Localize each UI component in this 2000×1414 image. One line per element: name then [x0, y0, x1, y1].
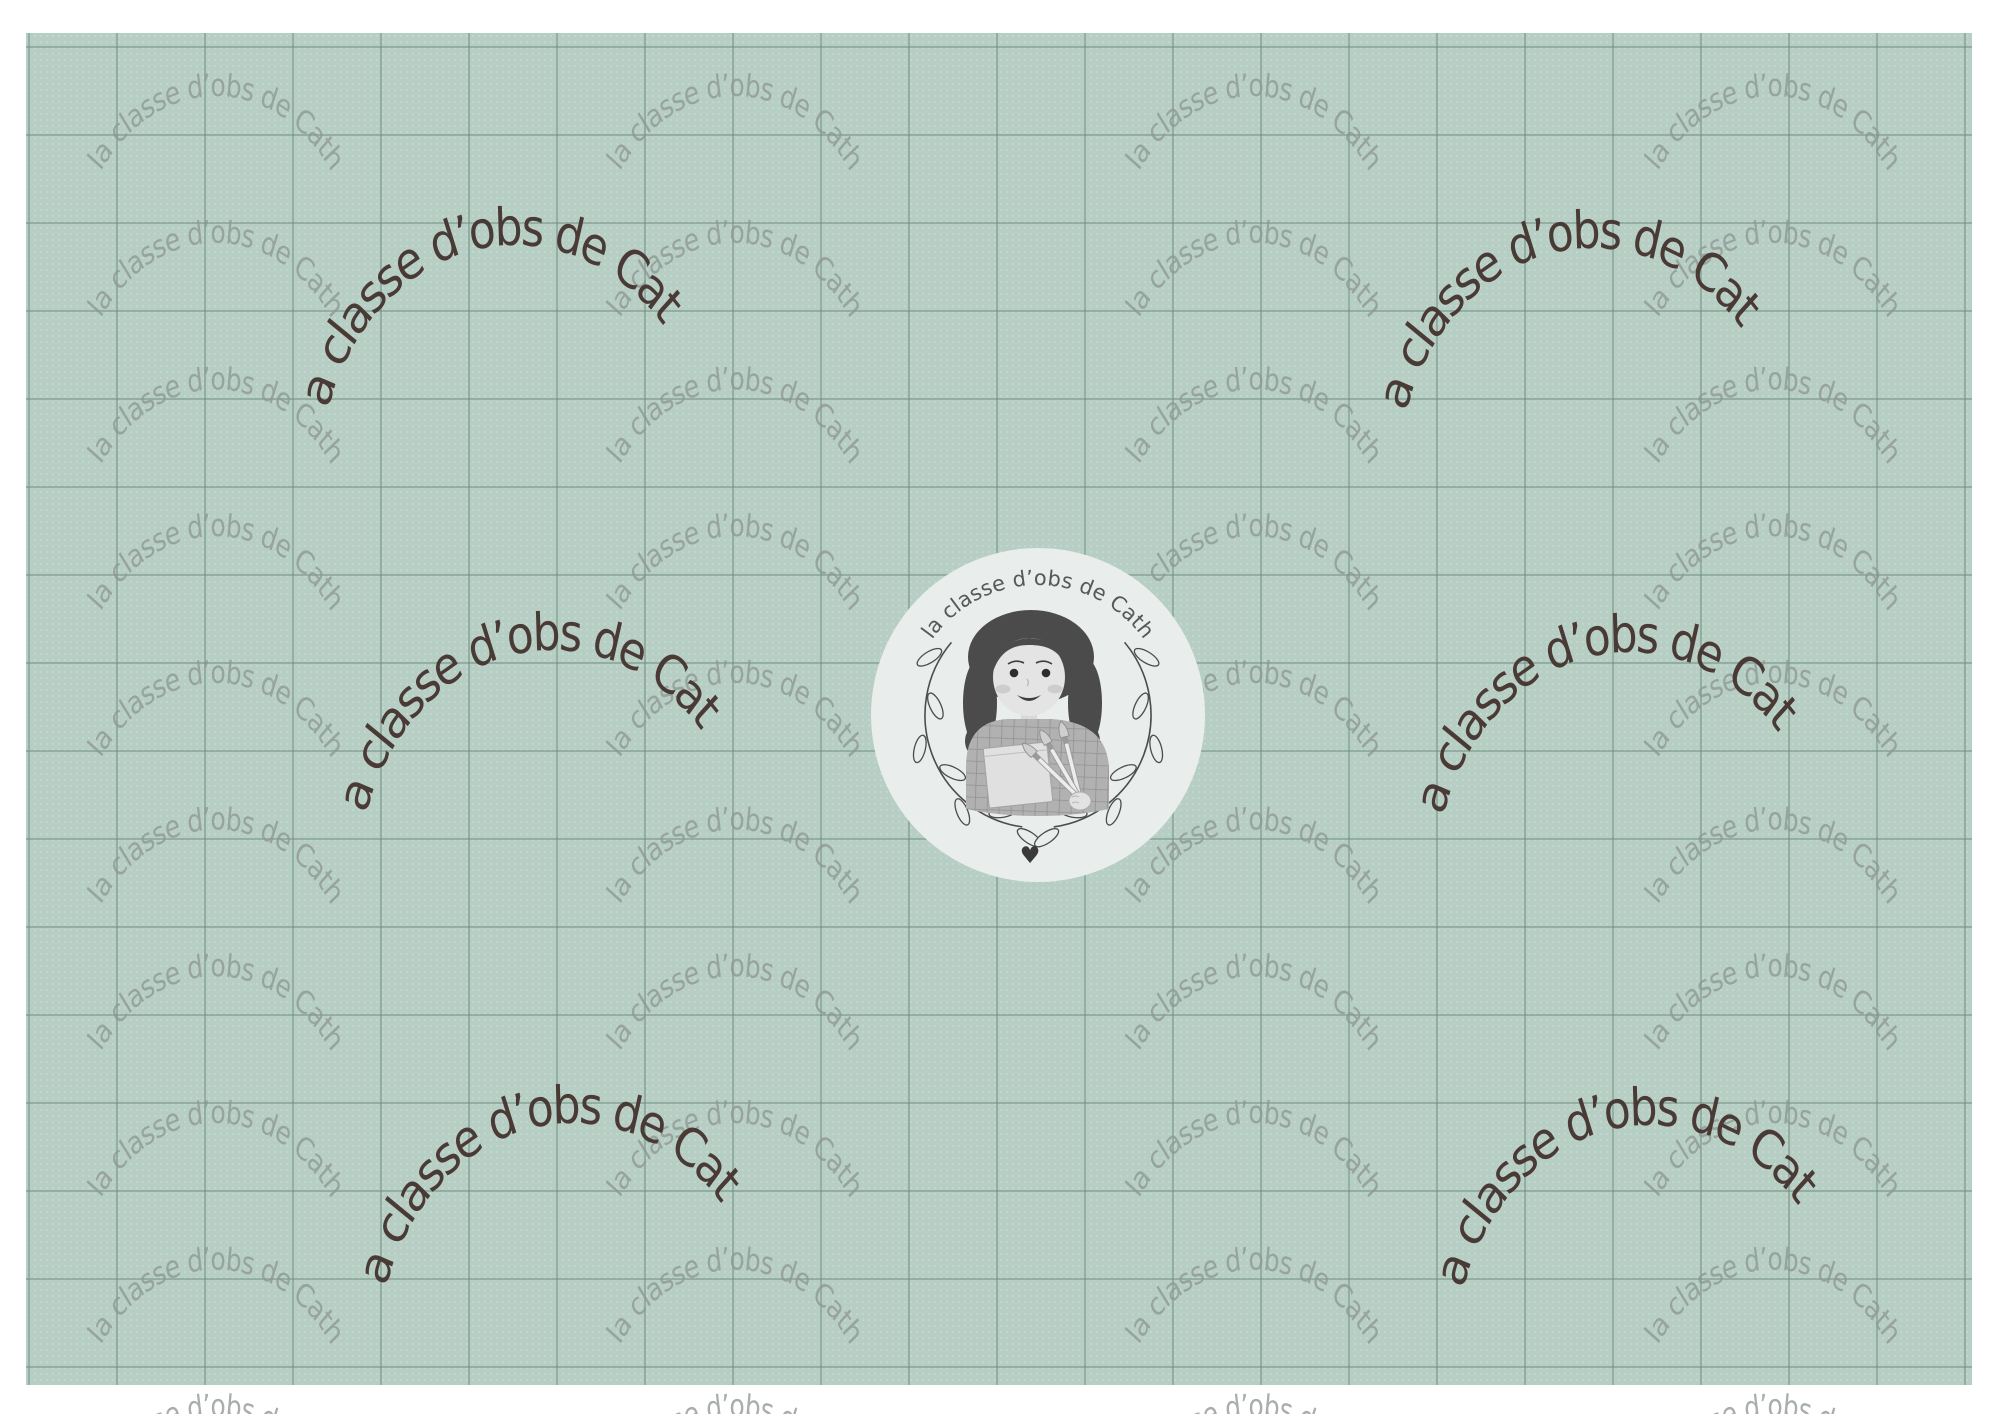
small-watermark-arc: la classe d’obs de Cath — [1120, 214, 1388, 323]
badge-circle — [871, 548, 1205, 882]
teacher-hand — [1069, 792, 1091, 810]
small-watermark-arc: la classe d’obs de Cath — [1120, 67, 1388, 176]
watermarked-page: la classe d’obs de Cathla classe d’obs d… — [0, 0, 2000, 1414]
small-watermark-arc: la classe d’obs de Cath — [601, 947, 869, 1056]
small-watermark-arc: la classe d’obs de Cath — [82, 1094, 350, 1203]
small-watermark-arc: la classe d’obs de Cath — [1120, 1241, 1388, 1350]
teacher-eye-right — [1042, 669, 1051, 678]
small-watermark-arc: la classe d’obs de Cath — [601, 361, 869, 470]
small-watermark-arc: la classe d’obs de Cath — [601, 1388, 869, 1414]
small-watermark-arc: la classe d’obs de Cath — [601, 507, 869, 616]
small-watermark-arc: la classe d’obs de Cath — [1639, 801, 1907, 910]
small-watermark-arc: la classe d’obs de Cath — [1120, 361, 1388, 470]
small-watermark-arc: la classe d’obs de Cath — [82, 507, 350, 616]
small-watermark-arc: la classe d’obs de Cath — [1639, 1388, 1907, 1414]
large-watermark-arc: la classe d’obs de Cath — [1368, 200, 1771, 491]
large-watermark-arc: la classe d’obs de Cath — [348, 1075, 751, 1366]
small-watermark-arc: la classe d’obs de Cath — [82, 947, 350, 1056]
small-watermark-arc: la classe d’obs de Cath — [1120, 1388, 1388, 1414]
small-watermark-arc: la classe d’obs de Cath — [82, 1241, 350, 1350]
small-watermark-arc: la classe d’obs de Cath — [82, 801, 350, 910]
small-watermark-arc: la classe d’obs de Cath — [1639, 361, 1907, 470]
small-watermark-arc: la classe d’obs de Cath — [1639, 507, 1907, 616]
small-watermark-arc: la classe d’obs de Cath — [82, 654, 350, 763]
small-watermark-arc: la classe d’obs de Cath — [82, 67, 350, 176]
small-watermark-arc: la classe d’obs de Cath — [82, 214, 350, 323]
small-watermark-arc: la classe d’obs de Cath — [1639, 1241, 1907, 1350]
teacher-blush-left — [996, 685, 1011, 694]
heart-icon: ♥ — [1020, 843, 1041, 869]
small-watermark-arc: la classe d’obs de Cath — [1120, 947, 1388, 1056]
large-watermark-arc: la classe d’obs de Cath — [1425, 1077, 1828, 1368]
small-watermark-arc: la classe d’obs de Cath — [601, 67, 869, 176]
notebook-icon — [983, 742, 1053, 808]
small-watermark-arc: la classe d’obs de Cath — [1639, 67, 1907, 176]
small-watermark-arc: la classe d’obs de Cath — [601, 801, 869, 910]
large-watermark-arc: la classe d’obs de Cath — [1405, 604, 1808, 895]
teacher-eye-left — [1010, 669, 1019, 678]
small-watermark-arc: la classe d’obs de Cath — [1120, 1094, 1388, 1203]
small-watermark-arc: la classe d’obs de Cath — [1639, 947, 1907, 1056]
teacher-blush-right — [1048, 685, 1063, 694]
small-watermark-arc: la classe d’obs de Cath — [82, 1388, 350, 1414]
teacher-illustration — [963, 610, 1109, 816]
small-watermark-arc: la classe d’obs de Cath — [601, 1241, 869, 1350]
brand-badge: la classe d’obs de Cath ♥ — [871, 548, 1205, 882]
